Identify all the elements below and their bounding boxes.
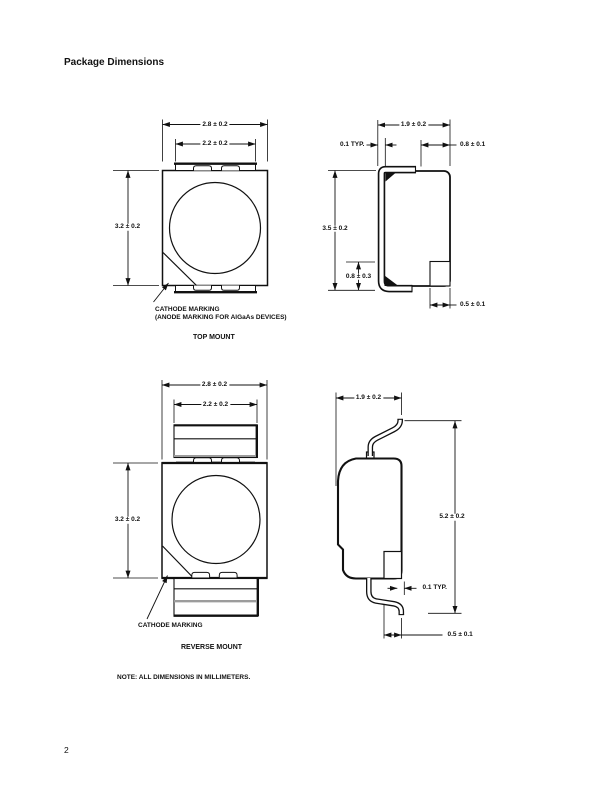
dim-label-rm-side-height: 5.2 ± 0.2 [437,514,466,521]
tm-caption: TOP MOUNT [193,334,235,341]
datasheet-page: Package Dimensions [0,0,612,792]
dim-label-tm-side-height: 3.5 ± 0.2 [320,225,349,232]
tm-front-bottom-bump [222,286,240,291]
dim-label-tm-side-width: 1.9 ± 0.2 [399,122,428,129]
rm-front-bottom-bump [192,572,210,577]
dim-label-rm-side-pad-bottom: 0.5 ± 0.1 [446,632,475,639]
dim-label-tm-side-pad-top: 0.8 ± 0.1 [458,142,487,149]
dim-label-rm-side-lead-thickness: 0.1 TYP. [421,585,449,592]
tm-front-bottom-bump [194,286,212,291]
dim-label-rm-front-width-inner: 2.2 ± 0.2 [201,401,230,408]
rm-side-bottom-lead [369,578,402,615]
dim-label-tm-front-width-outer: 2.8 ± 0.2 [200,121,229,128]
reverse-mount-front-view [113,380,268,619]
rm-caption: REVERSE MOUNT [181,644,242,651]
rm-front-bottom-lead-block [174,579,258,616]
rm-side-contact-pad [384,552,402,579]
dim-label-rm-front-width-outer: 2.8 ± 0.2 [200,382,229,389]
rm-front-bottom-bump [219,572,237,577]
rm-front-body [162,463,267,578]
rm-cathode-marking-callout: CATHODE MARKING [138,623,203,630]
tm-front-top-bump [222,166,240,171]
rm-front-cathode-leader-arrow [147,576,168,620]
page-number: 2 [64,746,69,755]
dim-label-tm-front-width-inner: 2.2 ± 0.2 [200,141,229,148]
dim-label-rm-side-width: 1.9 ± 0.2 [354,395,383,402]
tm-front-top-bump [194,166,212,171]
rm-front-top-lead-block [174,426,257,458]
dim-label-tm-front-height: 3.2 ± 0.2 [113,224,142,231]
top-mount-front-view [113,120,268,303]
tm-front-bottom-flange [176,286,256,292]
tm-side-contact-pad [430,262,450,287]
package-dimension-drawings [0,0,612,792]
tm-anode-marking-callout: (ANODE MARKING FOR AlGaAs DEVICES) [155,315,287,322]
tm-cathode-marking-callout: CATHODE MARKING [155,307,220,314]
dimensions-note: NOTE: ALL DIMENSIONS IN MILLIMETERS. [117,675,250,682]
dim-label-rm-front-height: 3.2 ± 0.2 [113,517,142,524]
tm-front-top-flange [176,164,256,171]
dim-label-tm-side-lead-bend: 0.8 ± 0.3 [344,273,373,280]
dim-label-tm-side-lead-thickness: 0.1 TYP. [338,142,366,149]
dim-label-tm-side-pad-bottom: 0.5 ± 0.1 [458,302,487,309]
